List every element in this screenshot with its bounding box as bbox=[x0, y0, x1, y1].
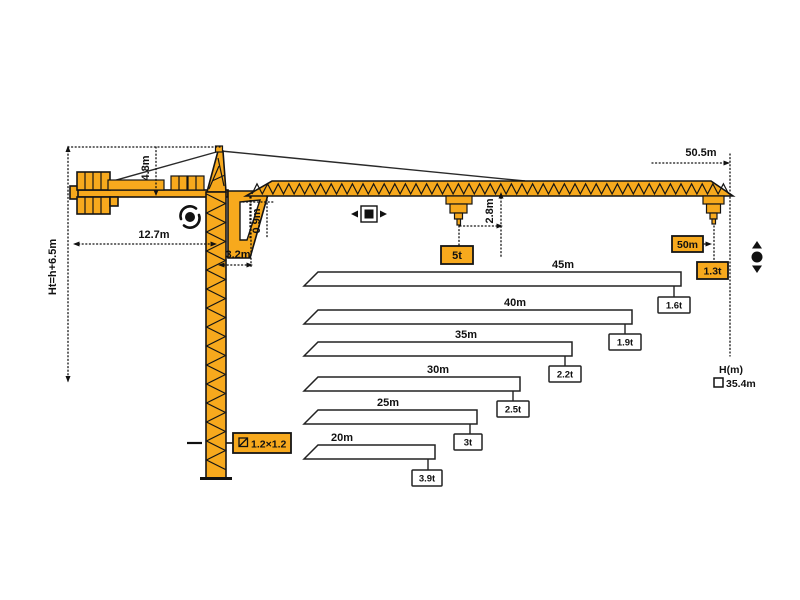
jib-bar-length: 20m bbox=[331, 432, 353, 444]
jib-bar-45m: 45m 1.6t bbox=[304, 259, 690, 313]
max-capacity-value: 5t bbox=[452, 250, 462, 262]
counter-jib-beam bbox=[73, 190, 228, 197]
jib-bar-length: 35m bbox=[455, 329, 477, 341]
hoisting-up-down-icon bbox=[752, 241, 763, 273]
mast-section-value: 1.2×1.2 bbox=[251, 439, 286, 451]
tip-capacity-tag: 1.3t bbox=[697, 262, 728, 279]
trolley-hook-tip bbox=[703, 196, 724, 224]
jib-bar-capacity: 1.6t bbox=[666, 301, 683, 312]
jib-bar-capacity: 3t bbox=[464, 438, 473, 449]
height-checkbox-icon bbox=[714, 378, 723, 387]
jib-bar-capacity: 2.2t bbox=[557, 370, 574, 381]
dim-tower-head: 4.8m bbox=[140, 155, 152, 180]
dim-counter-jib: 12.7m bbox=[138, 229, 169, 241]
crane-spec-diagram: Ht=h+6.5m 4.8m 12.7m 3.2m 0.9m 2.8m 50.5… bbox=[0, 0, 800, 600]
dim-jib-root: 3.2m bbox=[225, 249, 250, 261]
free-height-value: 35.4m bbox=[726, 378, 756, 390]
jib-bar-length: 25m bbox=[377, 397, 399, 409]
tip-capacity-value: 1.3t bbox=[703, 266, 722, 278]
tip-radius-value: 50m bbox=[677, 239, 698, 251]
slewing-rotation-icon bbox=[180, 206, 199, 227]
jib-bar-length: 45m bbox=[552, 259, 574, 271]
jib-bar-length: 30m bbox=[427, 364, 449, 376]
jib-bar-capacity: 2.5t bbox=[505, 405, 522, 416]
jib-bar-20m: 20m 3.9t bbox=[304, 432, 442, 486]
free-height-note: H(m) 35.4m bbox=[714, 364, 756, 390]
jib-bar-length: 40m bbox=[504, 297, 526, 309]
max-capacity-tag: 5t bbox=[441, 246, 473, 264]
tip-radius-tag: 50m bbox=[672, 236, 703, 252]
dim-hook-clearance: 2.8m bbox=[484, 198, 496, 223]
free-height-label: H(m) bbox=[719, 364, 743, 376]
tower-head bbox=[207, 146, 226, 192]
trolley-hook-mid bbox=[446, 196, 472, 225]
mast-section-tag: 1.2×1.2 bbox=[187, 433, 291, 453]
dim-max-jib: 50.5m bbox=[685, 147, 716, 159]
dim-hook-height: Ht=h+6.5m bbox=[47, 239, 59, 295]
trolley-travel-icon bbox=[351, 206, 387, 222]
jib-bar-capacity: 3.9t bbox=[419, 474, 436, 485]
jib-length-chart: 45m 1.6t 40m 1.9t 35m 2.2t 30m 2.5t bbox=[304, 259, 690, 486]
jib-bar-30m: 30m 2.5t bbox=[304, 364, 529, 417]
jib bbox=[246, 181, 733, 196]
dim-jib-depth: 0.9m bbox=[251, 208, 263, 233]
jib-bar-capacity: 1.9t bbox=[617, 338, 634, 349]
